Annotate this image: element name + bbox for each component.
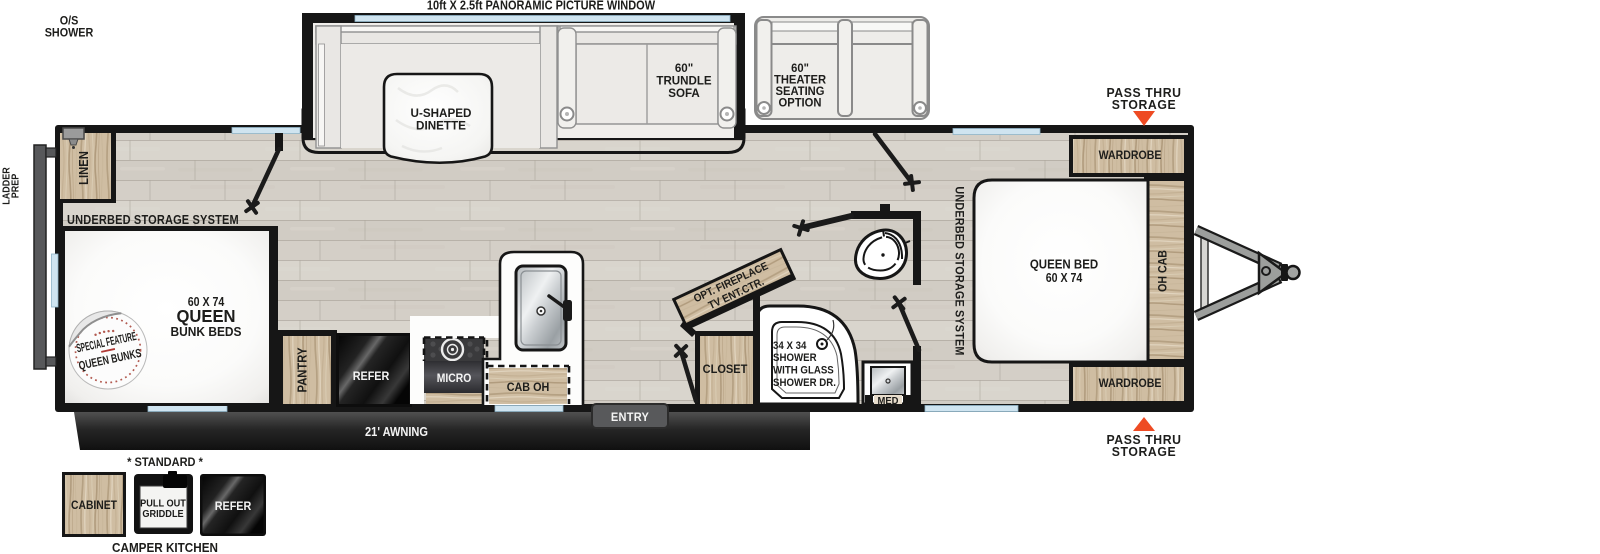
svg-text:CAB OH: CAB OH [507, 382, 550, 395]
svg-text:34 X 34: 34 X 34 [773, 341, 807, 353]
svg-text:QUEEN BED: QUEEN BED [1030, 257, 1099, 272]
svg-text:CAMPER KITCHEN: CAMPER KITCHEN [112, 540, 218, 554]
svg-text:WITH GLASS: WITH GLASS [773, 365, 834, 377]
svg-text:REFER: REFER [353, 371, 390, 384]
svg-text:BUNK BEDS: BUNK BEDS [170, 325, 241, 340]
svg-text:THEATER: THEATER [774, 74, 827, 86]
svg-text:QUEEN: QUEEN [176, 307, 235, 326]
svg-text:60 X 74: 60 X 74 [1046, 271, 1083, 285]
svg-text:PANTRY: PANTRY [295, 347, 310, 392]
svg-text:LINEN: LINEN [76, 151, 91, 185]
svg-text:CABINET: CABINET [71, 500, 117, 513]
svg-text:OPTION: OPTION [779, 97, 822, 109]
svg-text:SHOWER: SHOWER [45, 27, 94, 40]
svg-text:SOFA: SOFA [668, 86, 700, 100]
svg-text:10ft X 2.5ft PANORAMIC PICTURE: 10ft X 2.5ft PANORAMIC PICTURE WINDOW [427, 0, 656, 13]
svg-text:WARDROBE: WARDROBE [1099, 377, 1162, 390]
svg-text:MICRO: MICRO [437, 373, 472, 386]
svg-text:SHOWER: SHOWER [773, 353, 817, 365]
svg-text:STORAGE: STORAGE [1112, 445, 1176, 459]
svg-text:WARDROBE: WARDROBE [1099, 149, 1162, 162]
svg-text:* STANDARD *: * STANDARD * [127, 457, 203, 469]
svg-text:OH CAB: OH CAB [1157, 250, 1170, 292]
svg-text:MED: MED [878, 396, 899, 408]
svg-text:O/S: O/S [60, 15, 79, 28]
svg-text:DINETTE: DINETTE [416, 118, 466, 132]
svg-text:REFER: REFER [215, 501, 252, 514]
svg-text:STORAGE: STORAGE [1112, 98, 1176, 112]
svg-text:ENTRY: ENTRY [611, 412, 649, 424]
svg-text:PREP: PREP [10, 173, 22, 198]
svg-text:GRIDDLE: GRIDDLE [142, 509, 184, 520]
svg-text:60": 60" [791, 63, 809, 75]
svg-text:CLOSET: CLOSET [703, 364, 748, 376]
svg-text:UNDERBED STORAGE SYSTEM: UNDERBED STORAGE SYSTEM [67, 213, 239, 227]
svg-text:21' AWNING: 21' AWNING [365, 424, 428, 439]
svg-text:SHOWER DR.: SHOWER DR. [773, 378, 836, 390]
svg-text:SEATING: SEATING [776, 86, 825, 98]
svg-text:UNDERBED STORAGE SYSTEM: UNDERBED STORAGE SYSTEM [952, 186, 965, 355]
